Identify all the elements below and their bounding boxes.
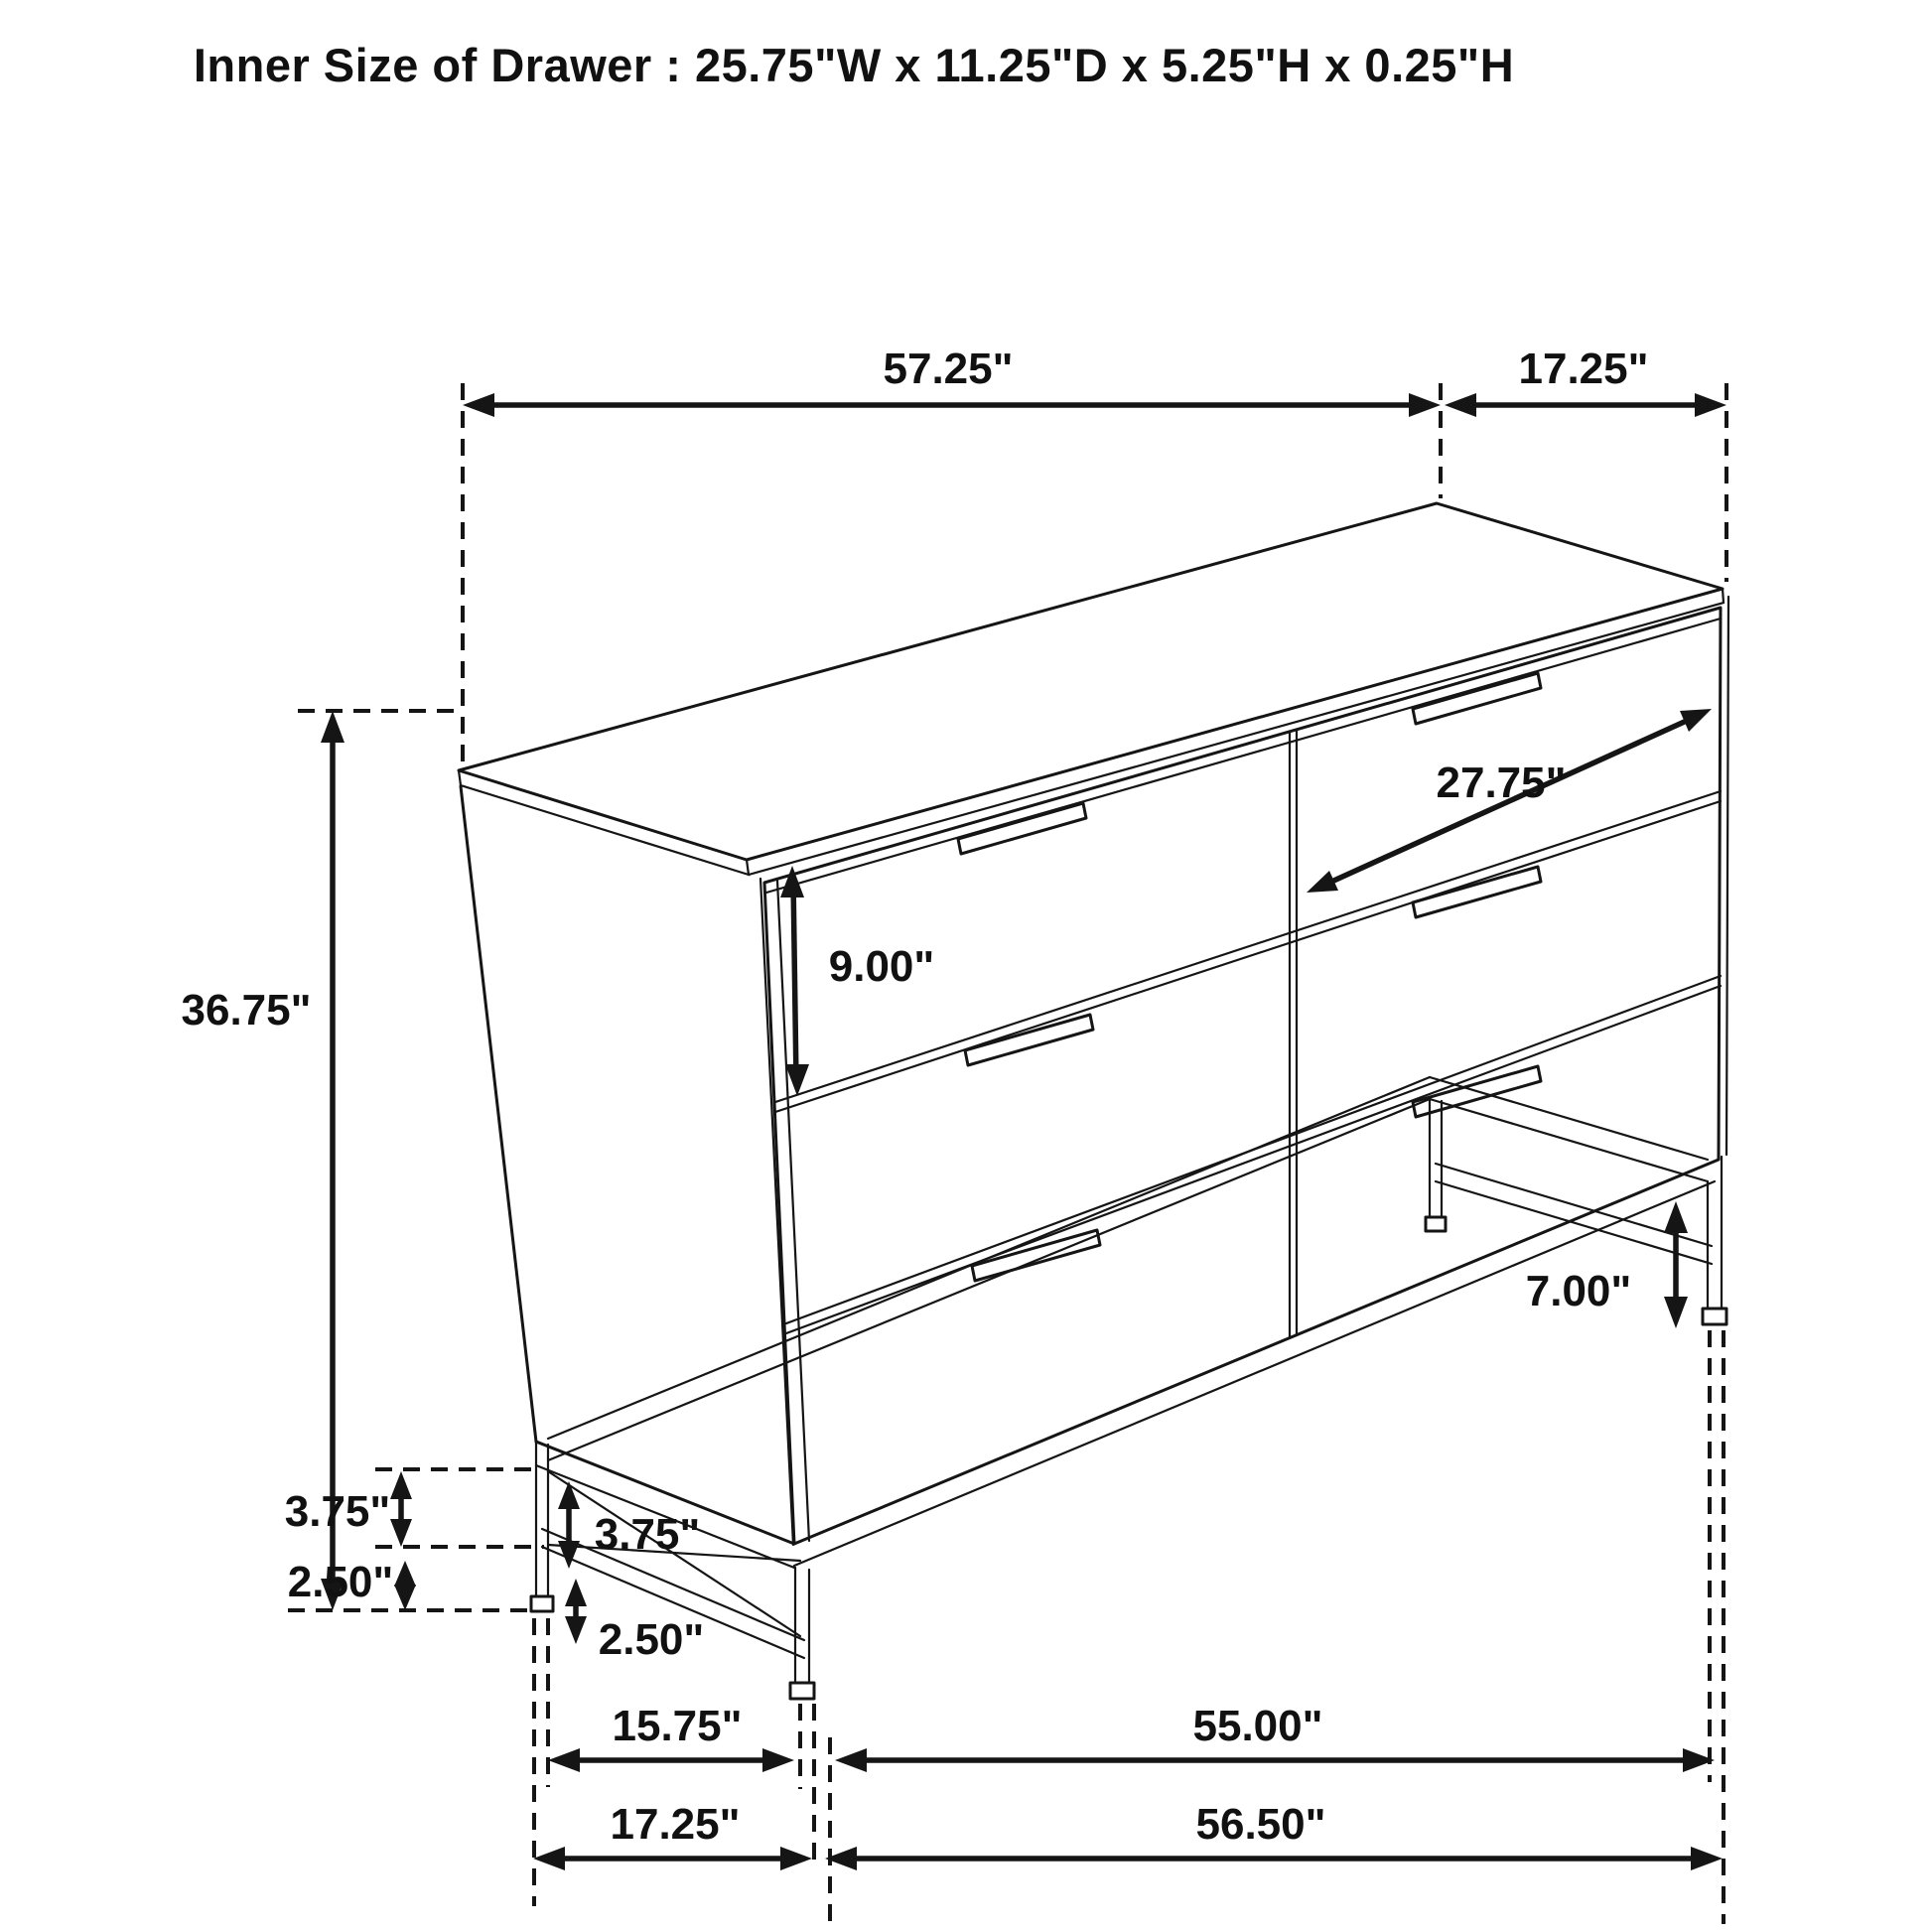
dim-label-drawer-front-height: 9.00" bbox=[829, 942, 935, 991]
dresser-dimension-drawing: 57.25" 17.25" 36.75" 9.00" 27.75" 7.00" bbox=[0, 0, 1932, 1932]
dim-label-overall-height: 36.75" bbox=[182, 986, 312, 1035]
dim-label-drawer-width: 27.75" bbox=[1437, 759, 1567, 807]
dim-label-gap-upper-front: 3.75" bbox=[595, 1510, 701, 1559]
dim-label-leg-span-depth-inner: 15.75" bbox=[613, 1702, 743, 1750]
dim-label-leg-span-width-outer: 56.50" bbox=[1196, 1800, 1326, 1849]
dim-gap-lower-rear: 2.50" bbox=[288, 1558, 416, 1610]
dim-label-gap-lower-rear: 2.50" bbox=[288, 1558, 394, 1606]
dim-label-top-width: 57.25" bbox=[884, 345, 1014, 393]
dim-gap-upper-rear: 3.75" bbox=[285, 1471, 412, 1547]
dim-label-leg-height: 7.00" bbox=[1526, 1267, 1632, 1315]
dim-leg-span-depth-inner: 15.75" bbox=[548, 1702, 794, 1772]
dimension-diagram-page: 57.25" 17.25" 36.75" 9.00" 27.75" 7.00" bbox=[0, 0, 1932, 1932]
dim-gap-lower-front: 2.50" bbox=[565, 1579, 704, 1664]
diagram-title: Inner Size of Drawer : 25.75"W x 11.25"D… bbox=[194, 39, 1514, 91]
dim-label-gap-lower-front: 2.50" bbox=[599, 1615, 705, 1664]
dim-label-top-depth: 17.25" bbox=[1519, 345, 1649, 393]
dim-overall-height: 36.75" bbox=[182, 711, 345, 1610]
dim-label-leg-span-depth-outer: 17.25" bbox=[611, 1800, 741, 1849]
dim-label-leg-span-width-inner: 55.00" bbox=[1193, 1702, 1323, 1750]
dim-label-gap-upper-rear: 3.75" bbox=[285, 1487, 391, 1536]
dim-top-width: 57.25" bbox=[463, 345, 1441, 417]
dim-leg-span-width-inner: 55.00" bbox=[835, 1702, 1715, 1772]
dim-top-depth: 17.25" bbox=[1445, 345, 1726, 417]
dim-leg-span-width-outer: 56.50" bbox=[825, 1800, 1723, 1870]
dim-leg-span-depth-outer: 17.25" bbox=[533, 1800, 812, 1870]
